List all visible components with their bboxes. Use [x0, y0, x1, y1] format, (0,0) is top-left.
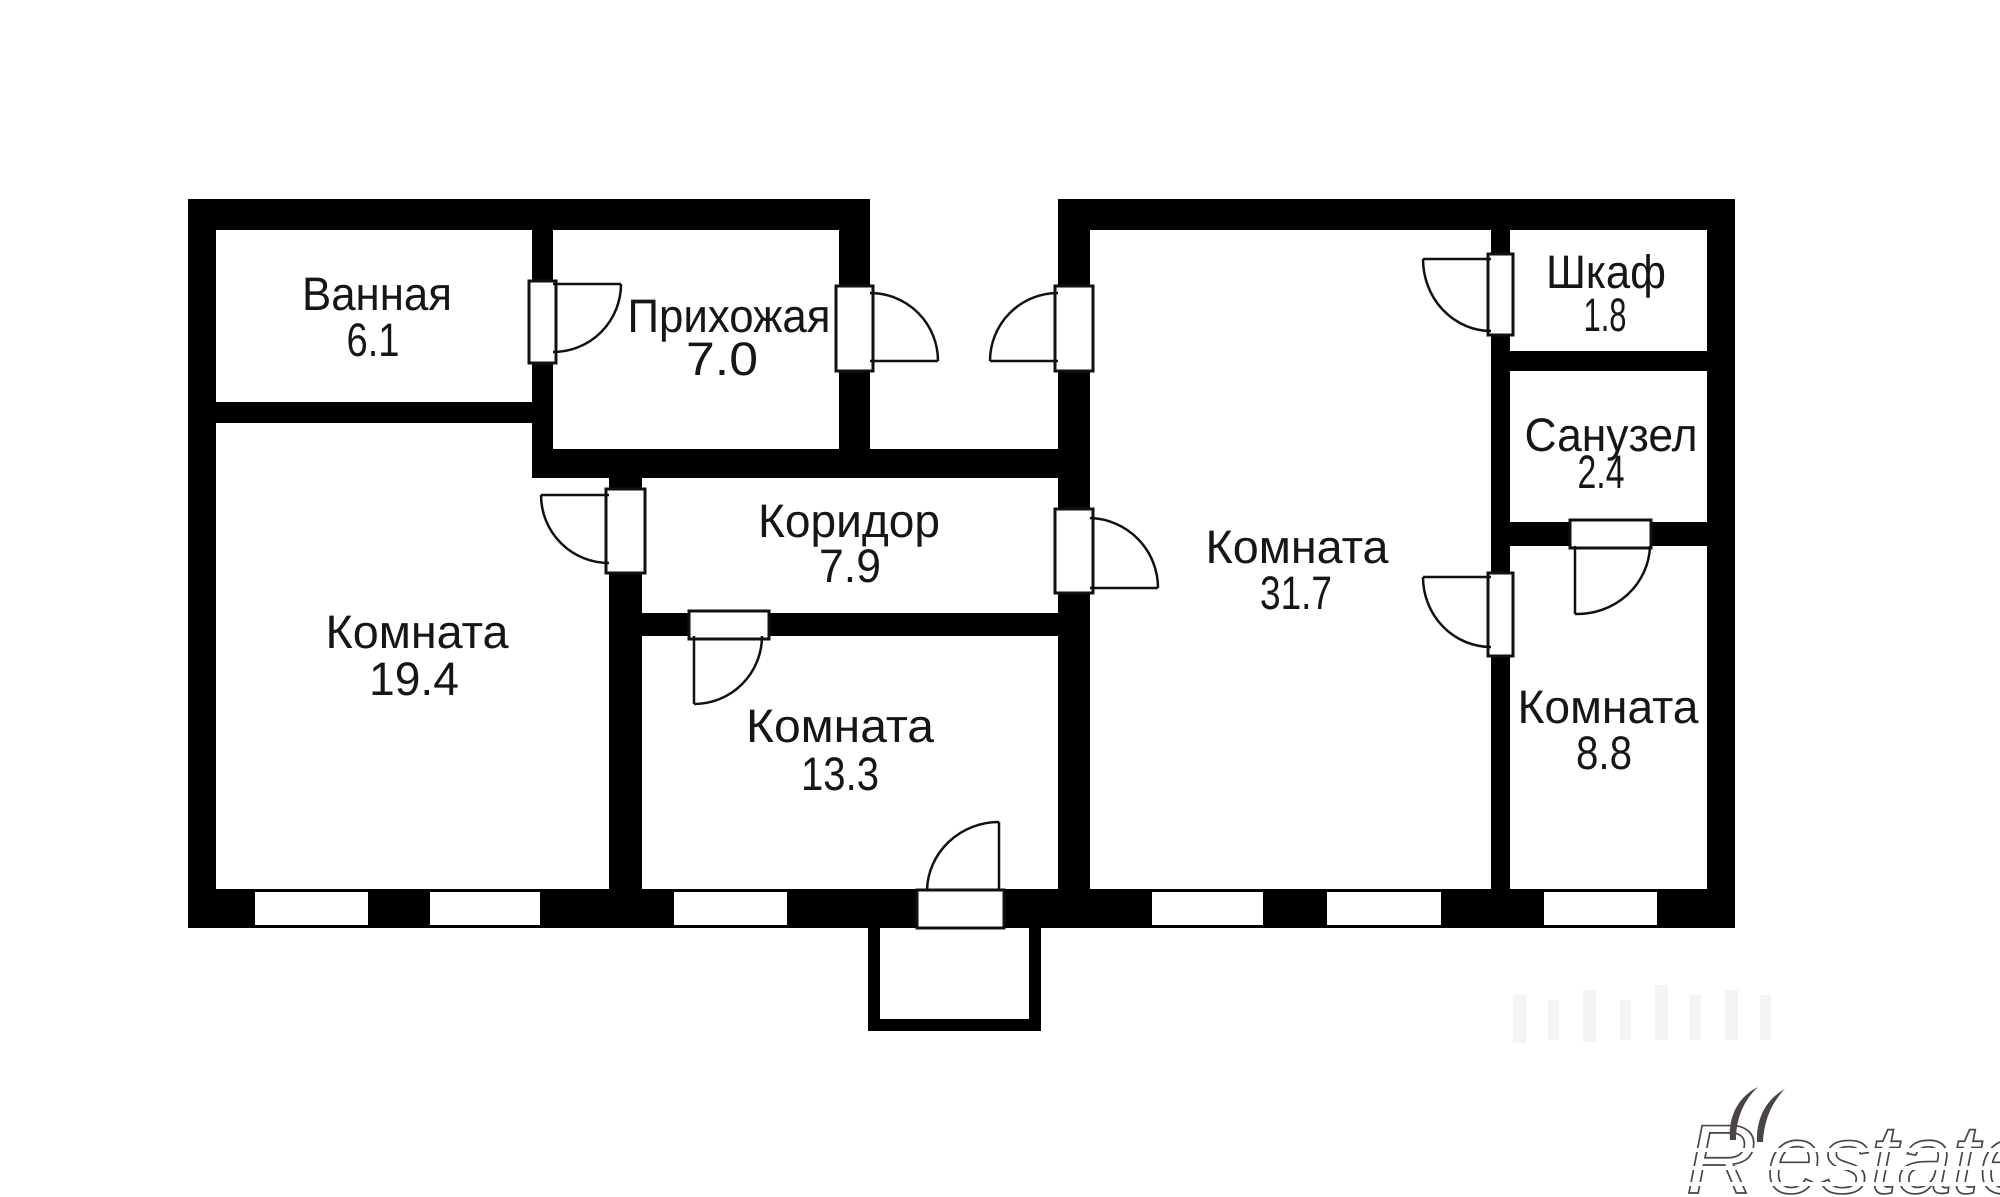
svg-text:31.7: 31.7 — [1260, 566, 1332, 619]
svg-text:6.1: 6.1 — [347, 313, 400, 366]
svg-text:1.8: 1.8 — [1584, 288, 1627, 341]
svg-text:19.4: 19.4 — [369, 652, 459, 705]
svg-text:Комната: Комната — [746, 699, 935, 752]
svg-text:8.8: 8.8 — [1576, 726, 1632, 779]
svg-text:7.9: 7.9 — [819, 539, 881, 592]
svg-text:2.4: 2.4 — [1578, 445, 1625, 498]
svg-text:Комната: Комната — [326, 605, 510, 658]
svg-text:7.0: 7.0 — [686, 332, 758, 385]
svg-text:13.3: 13.3 — [801, 747, 879, 800]
